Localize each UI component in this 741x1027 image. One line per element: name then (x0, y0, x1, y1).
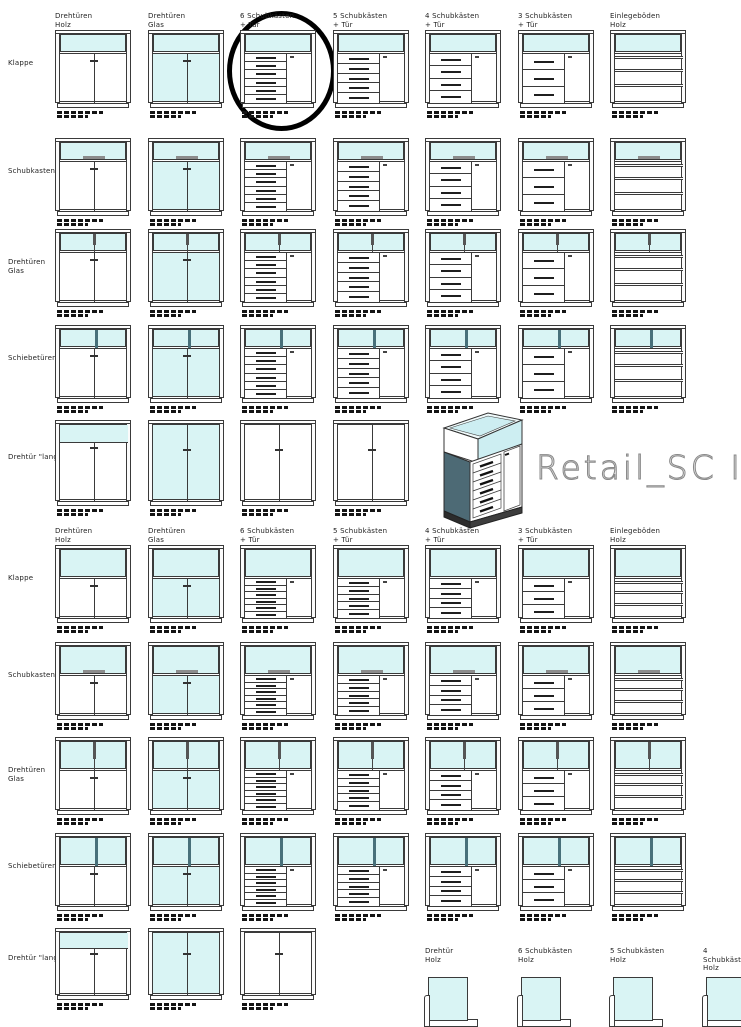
drawer-divider (338, 609, 380, 610)
door-handle (183, 449, 191, 451)
door-handle (383, 164, 387, 166)
cabinet-drawing (333, 642, 409, 732)
sliding-door-overlap (280, 330, 283, 348)
cabinet-caption-line (427, 111, 473, 114)
mini-column-header: 5 Schubkästen Holz (610, 947, 664, 964)
drawer-handle (441, 84, 461, 86)
door-handle (90, 777, 98, 779)
door-handle (183, 60, 191, 62)
row-label: Drehtür "lang" (8, 453, 62, 462)
cabinet-base (612, 211, 684, 216)
cabinet-drawing (240, 545, 316, 635)
drawer-divider (523, 604, 565, 605)
cabinet-body (429, 161, 497, 210)
cabinet-body (429, 675, 497, 714)
drawer-handle (441, 785, 461, 787)
cabinet-caption-line (150, 727, 181, 730)
cabinet-body (337, 161, 405, 210)
drawer-divider (338, 897, 380, 898)
cabinet-caption-line (520, 727, 551, 730)
cabinet-body (244, 252, 312, 301)
drawer-handle (349, 797, 369, 799)
cabinet-caption-line (427, 630, 458, 633)
glass-band (430, 837, 496, 865)
cabinet-drawing (425, 642, 501, 732)
glass-band (430, 549, 496, 577)
drawer-handle (256, 368, 276, 370)
cabinet-drawing (425, 833, 501, 923)
cabinet-base (150, 211, 222, 216)
cabinet-base (520, 810, 592, 815)
drawer-divider (245, 194, 287, 195)
drawer-divider (523, 701, 565, 702)
cabinet-drawing (240, 229, 316, 319)
row-label: Schiebetüren (8, 354, 57, 363)
drawer-handle (256, 588, 276, 590)
cabinet-drawing (148, 545, 224, 635)
glass-band (245, 329, 311, 347)
glass-band (153, 142, 219, 160)
drawer-handle (256, 780, 276, 782)
drawer-handle (441, 270, 461, 272)
drawer-handle (441, 900, 461, 902)
drawer-divider (245, 803, 287, 804)
glass-band (615, 646, 681, 674)
cabinet-base (57, 995, 129, 1000)
cabinet-caption-line (57, 822, 88, 825)
drawer-divider (338, 200, 380, 201)
sliding-door-overlap (95, 330, 98, 348)
drawer-divider (338, 586, 380, 587)
door-handle (290, 869, 294, 871)
drawer-handle (256, 352, 276, 354)
drawer-divider (430, 790, 472, 791)
drawer-handle (349, 78, 369, 80)
top-drawer-handle (453, 156, 475, 159)
drawer-handle (349, 774, 369, 776)
cabinet-body (244, 675, 312, 714)
cabinet-drawing (610, 833, 686, 923)
cabinet-caption-line (335, 918, 366, 921)
cabinet-caption-line (242, 723, 288, 726)
cabinet-base (612, 906, 684, 911)
cabinet-caption-line (335, 727, 366, 730)
drawer-divider (245, 61, 287, 62)
mini-glass-panel (706, 977, 741, 1021)
drawer-divider (523, 879, 565, 880)
drawer-divider (245, 879, 287, 880)
mini-glass-panel (613, 977, 653, 1021)
drawer-handle (256, 773, 276, 775)
drawer-divider (430, 385, 472, 386)
drawer-handle (534, 78, 554, 80)
drawer-handle (534, 777, 554, 779)
drawer-handle (349, 893, 369, 895)
drawer-divider (430, 78, 472, 79)
drawer-divider (245, 682, 287, 683)
cabinet-drawing (148, 737, 224, 827)
drawer-handle (256, 198, 276, 200)
cabinet-body (429, 53, 497, 102)
top-drawer-handle (361, 156, 383, 159)
drawer-divider (523, 364, 565, 365)
cabinet-caption-line (57, 1003, 103, 1006)
glass-band (338, 549, 404, 577)
drawer-handle (534, 389, 554, 391)
door-handle (90, 682, 98, 684)
door-divider (279, 425, 280, 501)
drawer-handle (534, 708, 554, 710)
drawer-divider (430, 65, 472, 66)
top-drawer-handle (638, 156, 660, 159)
drawer-handle (349, 363, 369, 365)
drawer-handle (349, 679, 369, 681)
door-handle (275, 449, 283, 451)
drawer-handle (256, 594, 276, 596)
glass-band (245, 549, 311, 577)
cabinet-caption-line (427, 822, 458, 825)
cabinet-caption-line (242, 914, 288, 917)
door-divider (94, 443, 95, 501)
drawer-handle (441, 690, 461, 692)
glass-door-handle (371, 742, 374, 759)
cabinet-body (59, 348, 127, 397)
drawer-handle (534, 277, 554, 279)
drawer-handle (441, 612, 461, 614)
drawer-divider (245, 177, 287, 178)
cabinet-caption-line (427, 914, 473, 917)
drawer-handle (441, 59, 461, 61)
column-header: 3 Schubkästen + Tür (518, 527, 572, 544)
glass-band (615, 34, 681, 52)
cabinet-caption-line (520, 111, 566, 114)
door-handle (383, 351, 387, 353)
glass-band (523, 142, 589, 160)
drawer-handle (441, 179, 461, 181)
cabinet-body (152, 770, 220, 809)
cabinet-caption-line (427, 727, 458, 730)
cabinet-caption-line (150, 626, 196, 629)
top-drawer-handle (83, 670, 105, 673)
catalog-sheet: Retail_SC II (0, 0, 741, 1027)
drawer-block (245, 162, 287, 211)
drawer-handle (534, 886, 554, 888)
cabinet-caption-line (520, 314, 551, 317)
cabinet-base (612, 398, 684, 403)
row-label: Drehtüren Glas (8, 258, 45, 275)
drawer-block (430, 771, 472, 810)
top-rail (615, 869, 683, 872)
cabinet-body (522, 866, 590, 905)
drawer-handle (256, 98, 276, 100)
cabinet-base (612, 302, 684, 307)
row-label: Klappe (8, 59, 33, 68)
drawer-handle (256, 90, 276, 92)
cabinet-caption-line (242, 223, 273, 226)
drawer-handle (349, 68, 369, 70)
door-handle (383, 581, 387, 583)
drawer-handle (349, 613, 369, 615)
drawer-divider (430, 198, 472, 199)
mini-column-header: 6 Schubkästen Holz (518, 947, 572, 964)
drawer-handle (349, 382, 369, 384)
cabinet-caption-line (520, 818, 566, 821)
cabinet-caption-line (57, 513, 88, 516)
drawer-handle (534, 899, 554, 901)
cabinet-base (57, 302, 129, 307)
drawer-handle (256, 256, 276, 258)
cabinet-caption-line (242, 727, 273, 730)
cabinet-caption-line (242, 1003, 288, 1006)
cabinet-base (150, 618, 222, 623)
cabinet-body (522, 578, 590, 617)
drawer-handle (534, 356, 554, 358)
drawer-handle (349, 598, 369, 600)
shelf (615, 700, 683, 703)
cabinet-caption-line (335, 723, 381, 726)
drawer-handle (349, 695, 369, 697)
cabinet-caption-line (427, 314, 458, 317)
cabinet-body (152, 348, 220, 397)
drawer-handle (349, 186, 369, 188)
cabinet-caption-line (242, 1007, 273, 1010)
cabinet-base (335, 398, 407, 403)
drawer-handle (256, 869, 276, 871)
drawer-divider (430, 685, 472, 686)
drawer-divider (338, 171, 380, 172)
cabinet-body (429, 348, 497, 397)
glass-band (523, 329, 589, 347)
drawer-divider (338, 706, 380, 707)
cabinet-base (520, 398, 592, 403)
drawer-handle (441, 192, 461, 194)
drawer-handle (534, 695, 554, 697)
cabinet-caption-line (57, 219, 103, 222)
cabinet-body (614, 252, 682, 301)
glass-band (430, 646, 496, 674)
drawer-divider (245, 78, 287, 79)
cabinet-base (335, 302, 407, 307)
drawer-divider (338, 778, 380, 779)
door-handle (383, 678, 387, 680)
cabinet-caption-line (150, 822, 181, 825)
drawer-handle (441, 804, 461, 806)
door-handle (183, 682, 191, 684)
cabinet-base (427, 302, 499, 307)
door-handle (90, 873, 98, 875)
cabinet-drawing (240, 30, 316, 120)
drawer-divider (523, 69, 565, 70)
drawer-divider (338, 281, 380, 282)
brand-title: Retail_SC II (536, 448, 741, 490)
drawer-divider (338, 786, 380, 787)
drawer-handle (256, 704, 276, 706)
drawer-handle (441, 709, 461, 711)
cabinet-caption-line (57, 626, 103, 629)
door-handle (275, 953, 283, 955)
drawer-block (245, 867, 287, 906)
drawer-handle (349, 87, 369, 89)
cabinet-caption-line (335, 914, 381, 917)
cabinet-body (59, 252, 127, 301)
door-handle (290, 581, 294, 583)
drawer-block (245, 54, 287, 103)
drawer-handle (349, 605, 369, 607)
drawer-block (523, 253, 565, 302)
cabinet-caption-line (520, 918, 551, 921)
drawer-divider (523, 268, 565, 269)
cabinet-caption-line (612, 822, 643, 825)
cabinet-caption-line (150, 1007, 181, 1010)
drawer-divider (338, 683, 380, 684)
cabinet-caption-line (520, 219, 566, 222)
cabinet-drawing (518, 833, 594, 923)
drawer-block (523, 54, 565, 103)
cabinet-body (59, 770, 127, 809)
cabinet-drawing (148, 325, 224, 415)
cabinet-caption-line (335, 410, 366, 413)
cabinet-body (429, 866, 497, 905)
glass-door-handle (278, 234, 281, 245)
drawer-divider (338, 889, 380, 890)
cabinet-base (242, 810, 314, 815)
drawer-handle (441, 71, 461, 73)
glass-band (338, 142, 404, 160)
flap-band (60, 425, 128, 443)
drawer-handle (441, 96, 461, 98)
cabinet-drawing (148, 229, 224, 319)
cabinet-base (427, 103, 499, 108)
door-handle (568, 164, 572, 166)
cabinet-caption-line (150, 410, 181, 413)
top-rail (615, 773, 683, 776)
glass-door-handle (93, 234, 96, 245)
glass-band (338, 741, 404, 769)
door-handle (568, 56, 572, 58)
top-drawer-handle (268, 670, 290, 673)
cabinet-drawing (55, 928, 131, 1012)
cabinet-base (57, 501, 129, 506)
drawer-divider (245, 364, 287, 365)
cabinet-caption-line (150, 219, 196, 222)
cabinet-body (152, 53, 220, 102)
drawer-divider (430, 598, 472, 599)
drawer-block (523, 771, 565, 810)
drawer-divider (523, 783, 565, 784)
drawer-handle (349, 878, 369, 880)
drawer-divider (245, 790, 287, 791)
drawer-divider (245, 373, 287, 374)
cabinet-body (152, 161, 220, 210)
sliding-door-overlap (465, 838, 468, 866)
cabinet-caption-line (242, 626, 288, 629)
cabinet-caption-line (427, 406, 473, 409)
drawer-handle (349, 176, 369, 178)
drawer-divider (338, 73, 380, 74)
glass-band (60, 34, 126, 52)
mini-door-post (424, 995, 430, 1027)
drawer-block (245, 253, 287, 302)
door-handle (568, 581, 572, 583)
drawer-block (338, 676, 380, 715)
drawer-block (245, 676, 287, 715)
cabinet-caption-line (242, 219, 288, 222)
drawer-handle (441, 295, 461, 297)
door-divider (187, 425, 188, 501)
top-drawer-handle (453, 670, 475, 673)
cabinet-caption-line (242, 410, 273, 413)
drawer-block (523, 867, 565, 906)
cabinet-base (150, 398, 222, 403)
drawer-divider (430, 780, 472, 781)
column-header: 6 Schubkästen + Tür (240, 12, 294, 29)
cabinet-base (242, 715, 314, 720)
cabinet-drawing (333, 325, 409, 415)
cabinet-caption-line (150, 406, 196, 409)
sliding-door-overlap (373, 330, 376, 348)
cabinet-body (614, 161, 682, 210)
drawer-divider (245, 69, 287, 70)
cabinet-base (427, 810, 499, 815)
shelf (615, 364, 683, 367)
cabinet-caption-line (57, 115, 88, 118)
door-handle (90, 168, 98, 170)
drawer-handle (256, 882, 276, 884)
cabinet-base (57, 398, 129, 403)
cabinet-caption-line (57, 111, 103, 114)
drawer-handle (534, 61, 554, 63)
column-header: Drehtüren Glas (148, 12, 185, 29)
cabinet-base (242, 995, 314, 1000)
drawer-block (338, 349, 380, 398)
door-handle (183, 873, 191, 875)
glass-band (60, 233, 126, 251)
shelf (615, 783, 683, 786)
sliding-door-overlap (558, 330, 561, 348)
drawer-divider (523, 285, 565, 286)
drawer-block (430, 579, 472, 618)
shelf (615, 591, 683, 594)
shelf (615, 268, 683, 271)
cabinet-caption-line (520, 115, 551, 118)
cabinet-base (335, 810, 407, 815)
cabinet-drawing (148, 928, 224, 1012)
cabinet-caption-line (57, 310, 103, 313)
cabinet-body (244, 770, 312, 809)
cabinet-caption-line (335, 513, 366, 516)
cabinet-caption-line (57, 914, 103, 917)
cabinet-caption-line (612, 918, 643, 921)
mini-door-post (609, 995, 615, 1027)
shelf (615, 795, 683, 798)
mini-column-header: 4 Schubkästen Holz (703, 947, 741, 973)
glass-band (153, 34, 219, 52)
door-divider (372, 425, 373, 501)
shelf (615, 69, 683, 72)
glass-door-handle (648, 742, 651, 759)
cabinet-body (59, 866, 127, 905)
cabinet-caption-line (520, 310, 566, 313)
door-handle (383, 56, 387, 58)
drawer-handle (441, 775, 461, 777)
drawer-handle (256, 876, 276, 878)
cabinet-body (337, 866, 405, 905)
drawer-divider (245, 293, 287, 294)
cabinet-caption-line (612, 111, 658, 114)
drawer-divider (338, 291, 380, 292)
door-handle (568, 351, 572, 353)
cabinet-base (427, 618, 499, 623)
